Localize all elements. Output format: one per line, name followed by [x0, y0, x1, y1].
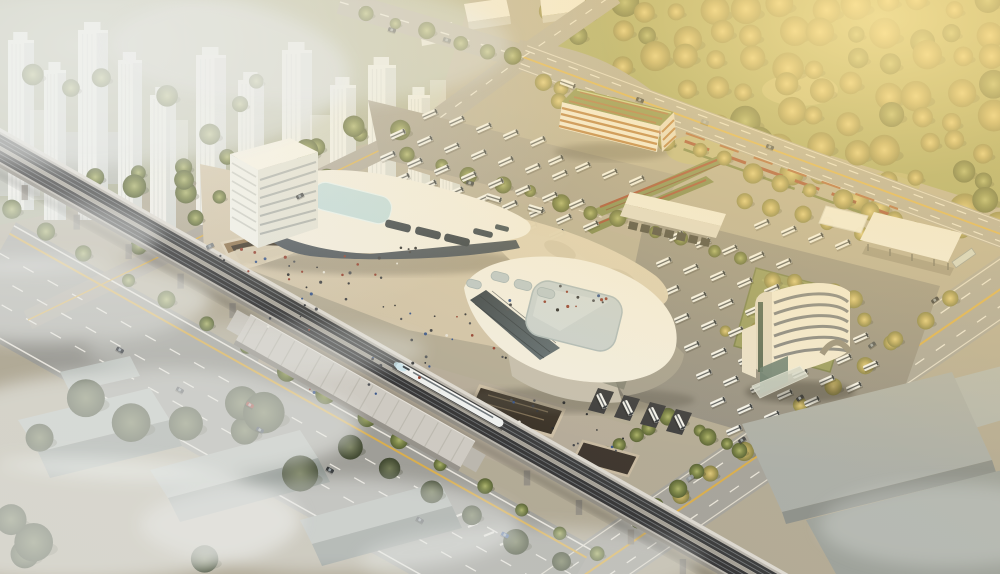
aerial-rendering: Bird's-eye architectural rendering of a … [0, 0, 1000, 574]
rendering-stage: Bird's-eye architectural rendering of a … [0, 0, 1000, 574]
atmosphere [0, 0, 1000, 574]
